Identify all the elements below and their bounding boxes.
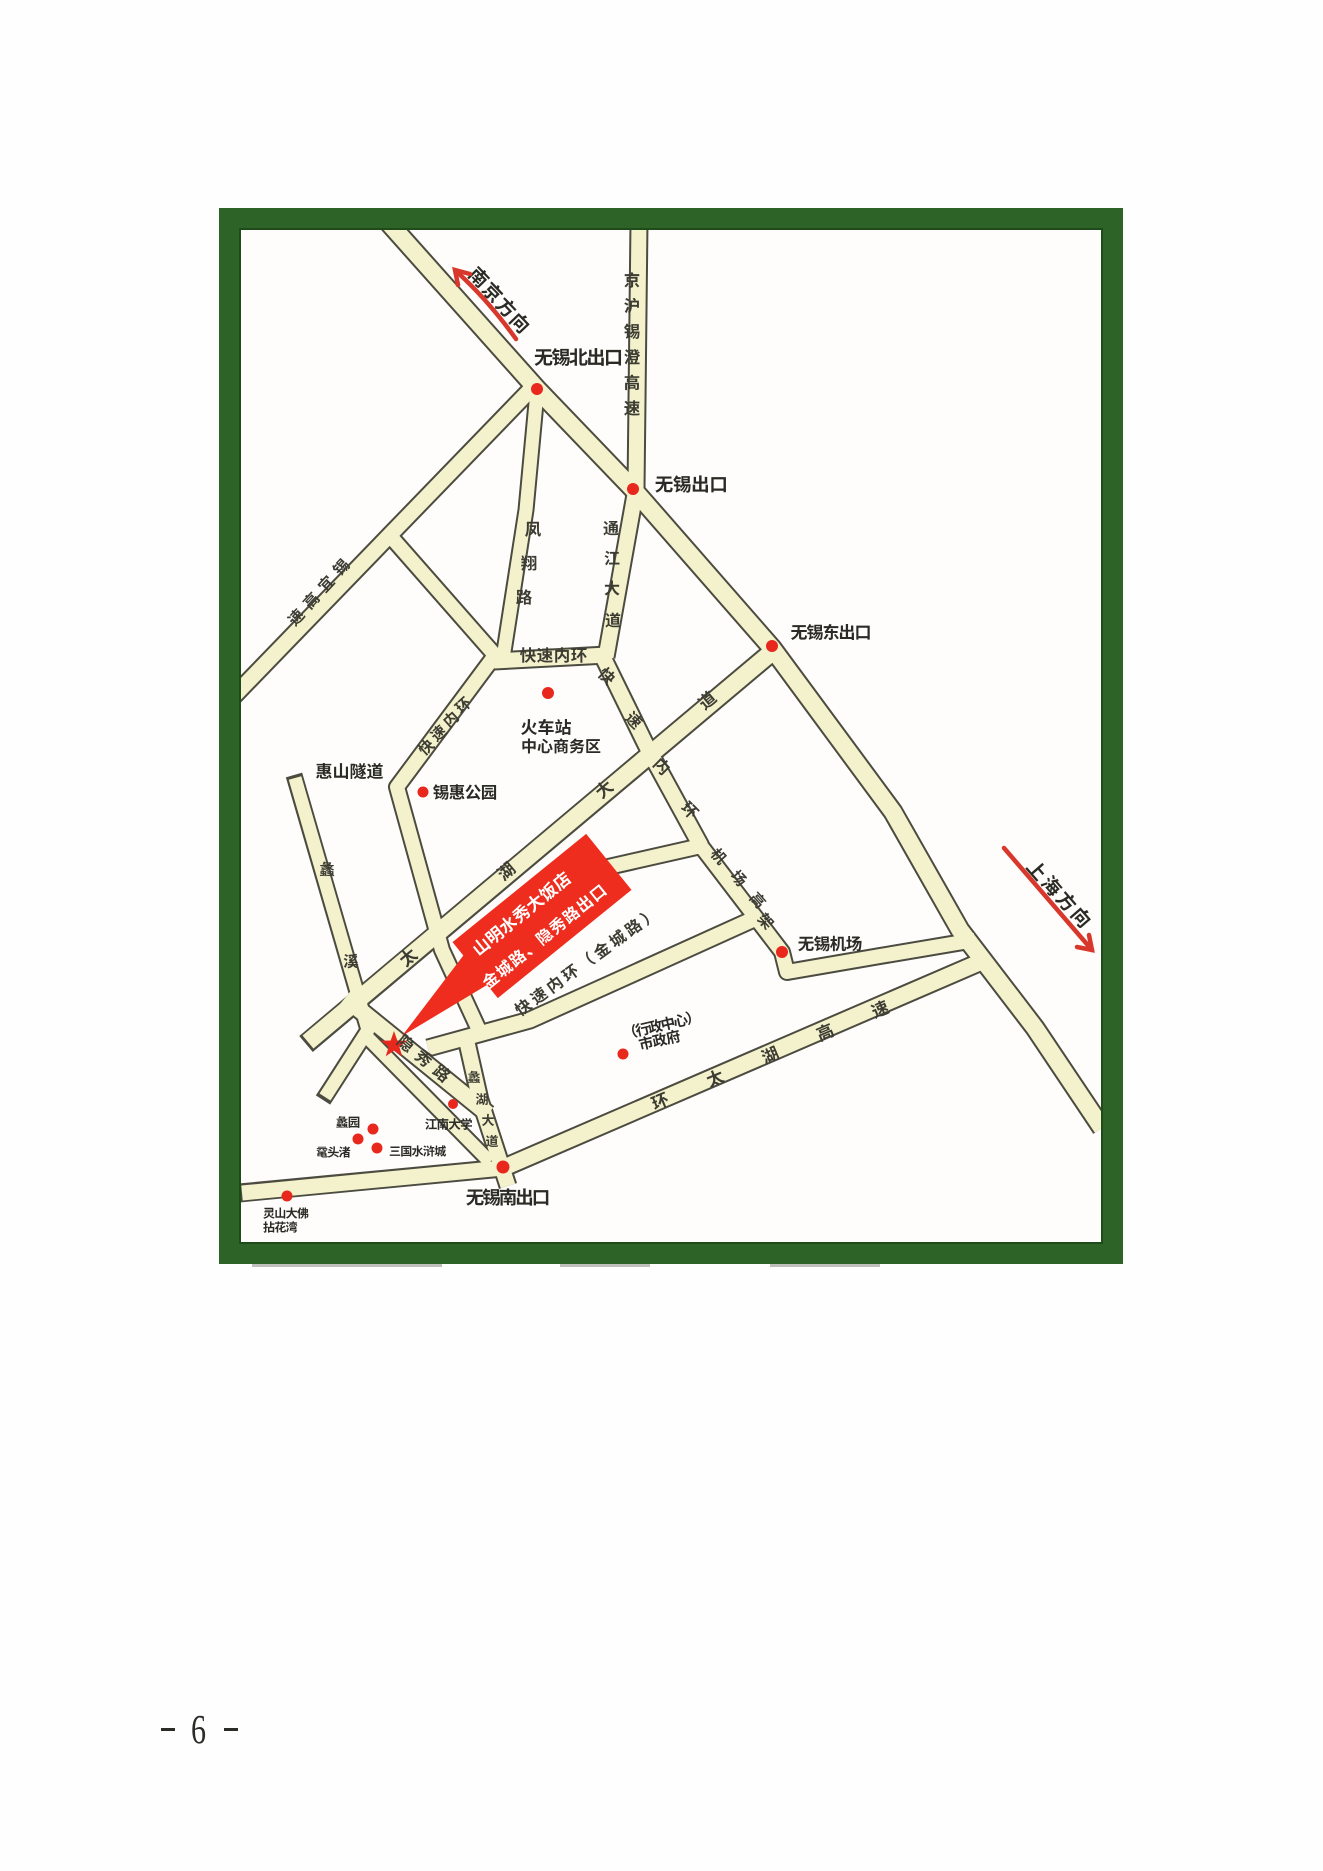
svg-text:6: 6 <box>191 1706 206 1752</box>
